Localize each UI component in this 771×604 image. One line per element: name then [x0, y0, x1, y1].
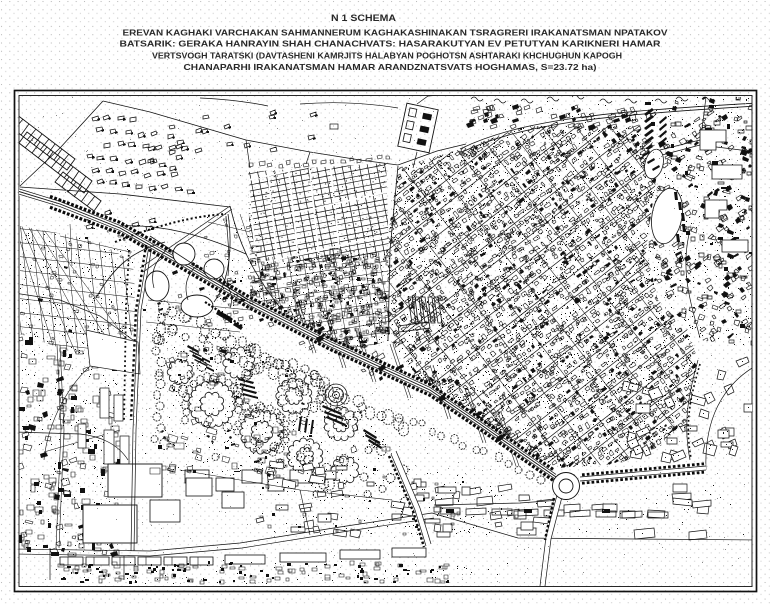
svg-text:CHANAPARHI IRAKANATSMAN HAMAR: CHANAPARHI IRAKANATSMAN HAMAR ARANDZNATS…	[184, 62, 597, 72]
svg-text:N 1 SCHEMA: N 1 SCHEMA	[331, 13, 397, 23]
svg-text:EREVAN KAGHAKI VARCHAKAN SAHMA: EREVAN KAGHAKI VARCHAKAN SAHMANNERUM KAG…	[123, 28, 668, 38]
svg-text:VERTSVOGH TARATSKI (DAVTASHENI: VERTSVOGH TARATSKI (DAVTASHENI KAMRJITS …	[152, 51, 622, 61]
svg-text:BATSARIK: GERAKA HANRAYIN SHAH: BATSARIK: GERAKA HANRAYIN SHAH CHANACHVA…	[120, 39, 661, 49]
